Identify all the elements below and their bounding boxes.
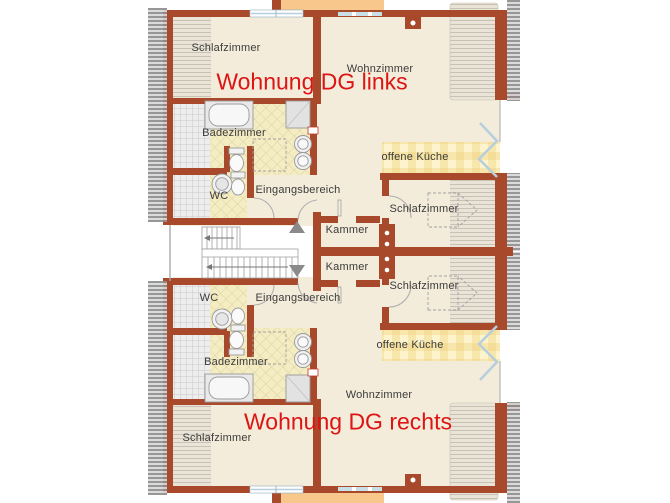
roof-slope-terrace xyxy=(450,3,498,100)
shower xyxy=(286,101,310,128)
stairhall-wall xyxy=(313,212,321,291)
roof-slope-zone xyxy=(173,16,211,98)
floorplan: Schlafzimmer Wohnzimmer Wohnung DG links… xyxy=(0,0,670,503)
bathtub xyxy=(205,101,253,129)
upper-apartment-graphics xyxy=(148,0,520,251)
lower-apartment-graphics xyxy=(148,252,520,503)
radiator xyxy=(308,127,318,134)
toilet xyxy=(229,148,244,172)
toilet xyxy=(231,172,245,195)
divider-wall xyxy=(321,247,513,256)
bath-grid-zone xyxy=(173,104,210,218)
staircase xyxy=(202,227,298,278)
chimney xyxy=(379,224,395,279)
adjacent-area xyxy=(280,0,384,11)
column-dot xyxy=(411,21,416,26)
kitchen-tiles xyxy=(382,142,500,173)
washing-machine xyxy=(212,174,232,194)
floorplan-canvas xyxy=(0,0,670,503)
